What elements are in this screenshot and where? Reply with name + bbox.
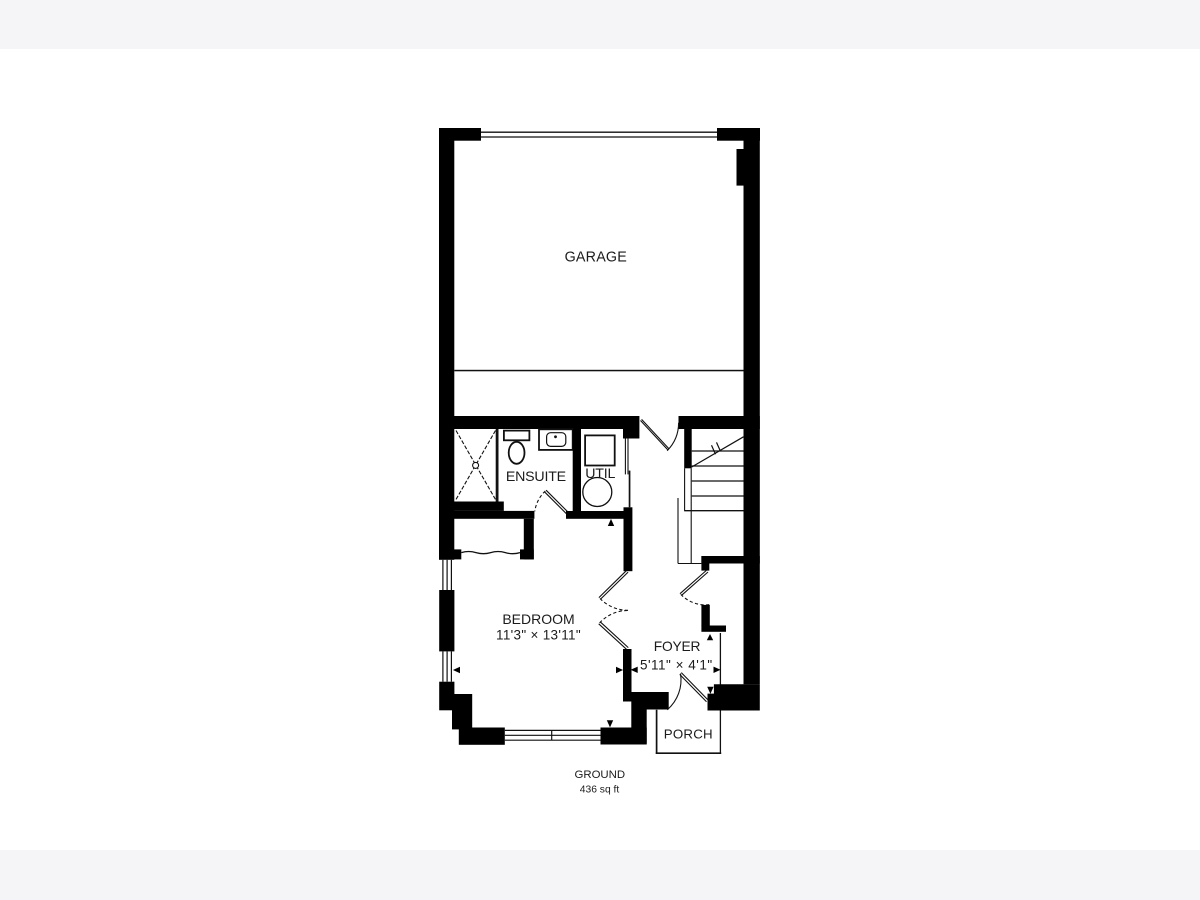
svg-text:BEDROOM: BEDROOM <box>502 611 574 627</box>
svg-text:GROUND: GROUND <box>574 769 625 781</box>
svg-text:436 sq ft: 436 sq ft <box>580 784 620 795</box>
svg-text:PORCH: PORCH <box>664 727 713 742</box>
svg-text:GARAGE: GARAGE <box>565 249 627 265</box>
svg-text:ENSUITE: ENSUITE <box>506 469 566 485</box>
svg-text:11'3" × 13'11": 11'3" × 13'11" <box>496 628 581 643</box>
svg-text:5'11" × 4'1": 5'11" × 4'1" <box>640 658 713 673</box>
svg-text:FOYER: FOYER <box>654 639 701 654</box>
svg-text:UTIL: UTIL <box>585 466 615 482</box>
